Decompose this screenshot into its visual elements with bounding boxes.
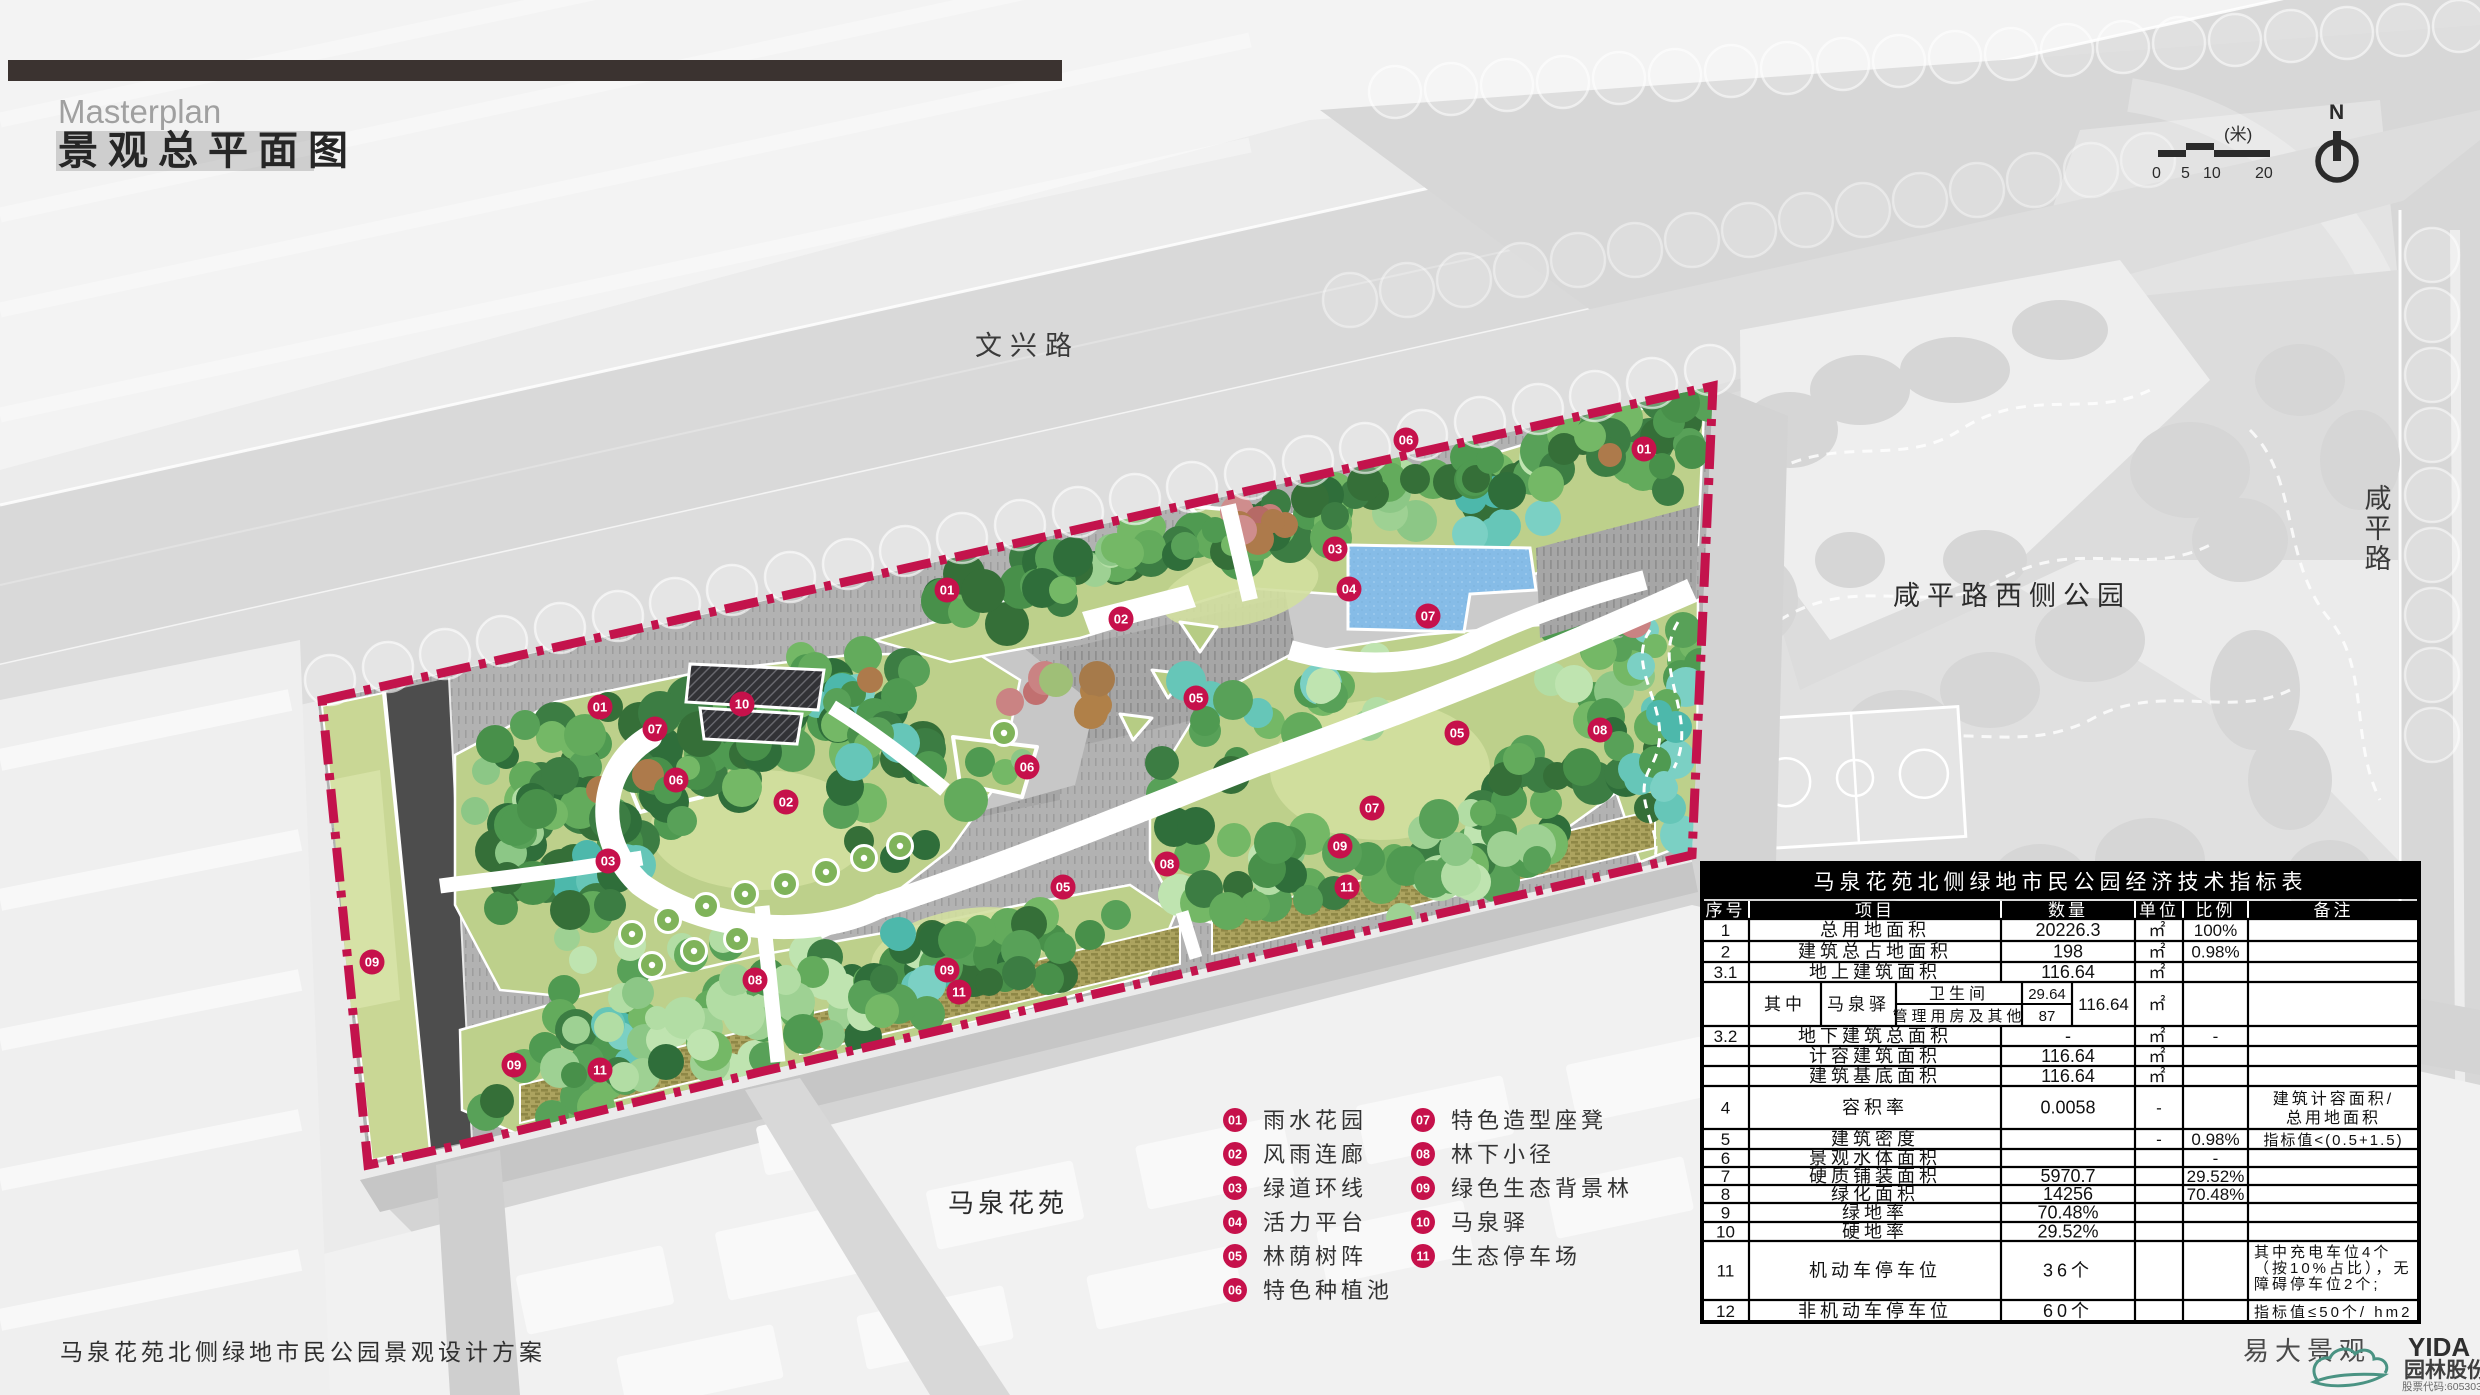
svg-text:(米): (米) [2224, 125, 2252, 144]
svg-text:07: 07 [1421, 609, 1435, 624]
svg-text:8: 8 [1721, 1185, 1730, 1204]
svg-text:㎡: ㎡ [2149, 995, 2170, 1014]
svg-text:116.64: 116.64 [2041, 962, 2095, 982]
svg-text:05: 05 [1228, 1250, 1242, 1264]
svg-text:01: 01 [940, 583, 954, 598]
svg-text:07: 07 [1365, 801, 1379, 816]
svg-text:20: 20 [2255, 165, 2273, 182]
svg-text:10: 10 [735, 697, 749, 712]
svg-text:5: 5 [1721, 1130, 1730, 1149]
svg-text:-: - [2156, 1130, 2162, 1149]
svg-text:11: 11 [1340, 880, 1354, 895]
svg-text:㎡: ㎡ [2149, 921, 2170, 940]
svg-text:5970.7: 5970.7 [2040, 1166, 2095, 1186]
svg-text:地上建筑面积: 地上建筑面积 [1809, 962, 1941, 982]
svg-text:09: 09 [1416, 1182, 1430, 1196]
svg-text:09: 09 [1333, 839, 1347, 854]
svg-text:01: 01 [1637, 442, 1651, 457]
svg-text:雨水花园: 雨水花园 [1263, 1108, 1367, 1133]
svg-text:单位: 单位 [2139, 901, 2179, 920]
svg-text:08: 08 [1416, 1148, 1430, 1162]
svg-text:咸平路西侧公园: 咸平路西侧公园 [1893, 581, 2131, 611]
svg-text:序号: 序号 [1706, 901, 1746, 920]
svg-text:建筑总占地面积: 建筑总占地面积 [1798, 942, 1952, 962]
svg-text:指标值≤50个/ hm2: 指标值≤50个/ hm2 [2254, 1304, 2412, 1321]
svg-text:绿道环线: 绿道环线 [1263, 1176, 1367, 1201]
svg-text:03: 03 [601, 854, 615, 869]
svg-text:06: 06 [1020, 760, 1034, 775]
svg-text:08: 08 [1593, 723, 1607, 738]
svg-text:20226.3: 20226.3 [2035, 920, 2100, 940]
svg-text:11: 11 [593, 1063, 607, 1078]
svg-text:04: 04 [1228, 1216, 1242, 1230]
svg-text:计容建筑面积: 计容建筑面积 [1809, 1046, 1941, 1066]
svg-text:㎡: ㎡ [2149, 1027, 2170, 1046]
svg-text:10: 10 [1716, 1223, 1735, 1242]
svg-text:07: 07 [648, 722, 662, 737]
svg-text:马泉花苑北侧绿地市民公园景观设计方案: 马泉花苑北侧绿地市民公园景观设计方案 [60, 1339, 546, 1365]
svg-text:09: 09 [940, 963, 954, 978]
svg-text:-: - [2213, 1027, 2219, 1046]
svg-text:60个: 60个 [2043, 1301, 2093, 1321]
svg-text:活力平台: 活力平台 [1263, 1210, 1367, 1235]
svg-text:马泉驿: 马泉驿 [1451, 1210, 1529, 1235]
svg-text:7: 7 [1721, 1167, 1730, 1186]
svg-text:-: - [2213, 1149, 2219, 1168]
svg-text:绿地率: 绿地率 [1842, 1203, 1908, 1223]
svg-text:06: 06 [1399, 433, 1413, 448]
svg-text:生态停车场: 生态停车场 [1451, 1244, 1581, 1269]
svg-text:㎡: ㎡ [2149, 943, 2170, 962]
svg-text:特色种植池: 特色种植池 [1263, 1278, 1393, 1303]
svg-text:其中: 其中 [1764, 995, 1806, 1014]
svg-text:0.0058: 0.0058 [2040, 1098, 2095, 1118]
svg-text:马泉驿: 马泉驿 [1827, 995, 1890, 1014]
svg-text:㎡: ㎡ [2149, 1047, 2170, 1066]
svg-text:11: 11 [952, 985, 966, 1000]
svg-text:116.64: 116.64 [2041, 1066, 2095, 1086]
svg-text:02: 02 [1114, 612, 1128, 627]
svg-text:绿化面积: 绿化面积 [1831, 1184, 1919, 1204]
svg-text:非机动车停车位: 非机动车停车位 [1798, 1301, 1952, 1321]
svg-text:10: 10 [1416, 1216, 1430, 1230]
svg-text:硬地率: 硬地率 [1842, 1222, 1908, 1242]
svg-text:3.1: 3.1 [1714, 963, 1738, 982]
svg-text:㎡: ㎡ [2149, 1067, 2170, 1086]
svg-text:硬质铺装面积: 硬质铺装面积 [1809, 1166, 1941, 1186]
svg-text:咸: 咸 [2365, 484, 2392, 514]
svg-text:05: 05 [1056, 880, 1070, 895]
svg-text:文兴路: 文兴路 [975, 331, 1080, 361]
svg-text:04: 04 [1342, 582, 1357, 597]
svg-text:02: 02 [779, 795, 793, 810]
svg-text:06: 06 [1228, 1284, 1242, 1298]
svg-text:05: 05 [1450, 726, 1464, 741]
svg-text:87: 87 [2039, 1008, 2056, 1025]
svg-text:建筑基底面积: 建筑基底面积 [1809, 1066, 1941, 1086]
svg-text:5: 5 [2181, 165, 2190, 182]
svg-text:地下建筑总面积: 地下建筑总面积 [1798, 1026, 1952, 1046]
svg-text:马泉花苑北侧绿地市民公园经济技术指标表: 马泉花苑北侧绿地市民公园经济技术指标表 [1814, 871, 2308, 894]
svg-text:01: 01 [1228, 1114, 1242, 1128]
svg-text:（按10%占比），无: （按10%占比），无 [2254, 1260, 2412, 1277]
svg-text:36个: 36个 [2043, 1261, 2093, 1281]
svg-text:绿色生态背景林: 绿色生态背景林 [1451, 1176, 1633, 1201]
svg-text:YIDA: YIDA [2408, 1332, 2470, 1362]
svg-text:总用地面积: 总用地面积 [2286, 1109, 2381, 1127]
svg-text:03: 03 [1228, 1182, 1242, 1196]
svg-text:平: 平 [2365, 514, 2392, 544]
svg-text:4: 4 [1721, 1099, 1730, 1118]
svg-text:林下小径: 林下小径 [1451, 1142, 1555, 1167]
svg-text:05: 05 [1189, 691, 1203, 706]
svg-text:08: 08 [1160, 857, 1174, 872]
svg-text:建筑计容面积/: 建筑计容面积/ [2273, 1090, 2394, 1108]
svg-text:70.48%: 70.48% [2187, 1185, 2245, 1204]
svg-text:01: 01 [593, 700, 607, 715]
svg-text:机动车停车位: 机动车停车位 [1809, 1261, 1941, 1281]
svg-text:6: 6 [1721, 1149, 1730, 1168]
svg-text:1: 1 [1721, 921, 1730, 940]
svg-text:3.2: 3.2 [1714, 1027, 1738, 1046]
svg-text:11: 11 [1416, 1250, 1429, 1264]
svg-text:07: 07 [1416, 1114, 1430, 1128]
svg-text:景观总平面图: 景观总平面图 [58, 129, 358, 173]
svg-text:N: N [2329, 101, 2344, 124]
svg-text:马泉花苑: 马泉花苑 [948, 1188, 1068, 1218]
svg-text:0.98%: 0.98% [2191, 943, 2239, 962]
svg-text:比例: 比例 [2196, 901, 2236, 920]
svg-text:70.48%: 70.48% [2037, 1203, 2098, 1223]
svg-text:数量: 数量 [2048, 901, 2088, 920]
svg-text:14256: 14256 [2043, 1184, 2093, 1204]
svg-text:风雨连廊: 风雨连廊 [1263, 1142, 1367, 1167]
svg-text:2: 2 [1721, 943, 1730, 962]
svg-text:Masterplan: Masterplan [58, 93, 221, 130]
svg-text:29.52%: 29.52% [2037, 1222, 2098, 1242]
svg-text:㎡: ㎡ [2149, 963, 2170, 982]
svg-text:卫生间: 卫生间 [1929, 985, 1989, 1003]
svg-text:08: 08 [748, 973, 762, 988]
svg-text:备注: 备注 [2314, 901, 2354, 920]
svg-text:园林股份: 园林股份 [2404, 1358, 2480, 1382]
svg-text:项目: 项目 [1855, 901, 1895, 920]
svg-text:股票代码:605303: 股票代码:605303 [2402, 1381, 2480, 1393]
svg-text:03: 03 [1328, 542, 1342, 557]
svg-text:-: - [2156, 1099, 2162, 1118]
svg-text:09: 09 [507, 1058, 521, 1073]
svg-text:116.64: 116.64 [2041, 1046, 2095, 1066]
svg-text:容积率: 容积率 [1842, 1098, 1908, 1118]
svg-text:总用地面积: 总用地面积 [1820, 920, 1930, 940]
svg-text:管理用房及其他: 管理用房及其他 [1892, 1008, 2025, 1025]
svg-text:障碍停车位2个;: 障碍停车位2个; [2254, 1275, 2381, 1293]
svg-text:29.64: 29.64 [2028, 986, 2066, 1003]
svg-text:12: 12 [1716, 1302, 1735, 1321]
svg-text:0: 0 [2152, 165, 2161, 182]
svg-text:指标值<(0.5+1.5): 指标值<(0.5+1.5) [2263, 1132, 2403, 1149]
svg-text:116.64: 116.64 [2078, 995, 2129, 1014]
svg-text:特色造型座凳: 特色造型座凳 [1451, 1108, 1607, 1133]
svg-text:02: 02 [1228, 1148, 1242, 1162]
svg-text:景观水体面积: 景观水体面积 [1809, 1148, 1941, 1168]
svg-text:-: - [2065, 1026, 2071, 1046]
svg-text:09: 09 [365, 955, 379, 970]
svg-text:9: 9 [1721, 1204, 1730, 1223]
svg-text:建筑密度: 建筑密度 [1831, 1129, 1919, 1149]
svg-text:路: 路 [2365, 544, 2392, 574]
svg-text:198: 198 [2053, 942, 2083, 962]
svg-text:06: 06 [669, 773, 683, 788]
svg-text:林荫树阵: 林荫树阵 [1263, 1244, 1367, 1269]
svg-text:29.52%: 29.52% [2187, 1167, 2245, 1186]
svg-text:10: 10 [2203, 165, 2221, 182]
svg-text:其中充电车位4个: 其中充电车位4个 [2254, 1244, 2391, 1261]
svg-text:0.98%: 0.98% [2191, 1130, 2239, 1149]
svg-text:11: 11 [1717, 1262, 1735, 1281]
svg-text:100%: 100% [2194, 921, 2237, 940]
